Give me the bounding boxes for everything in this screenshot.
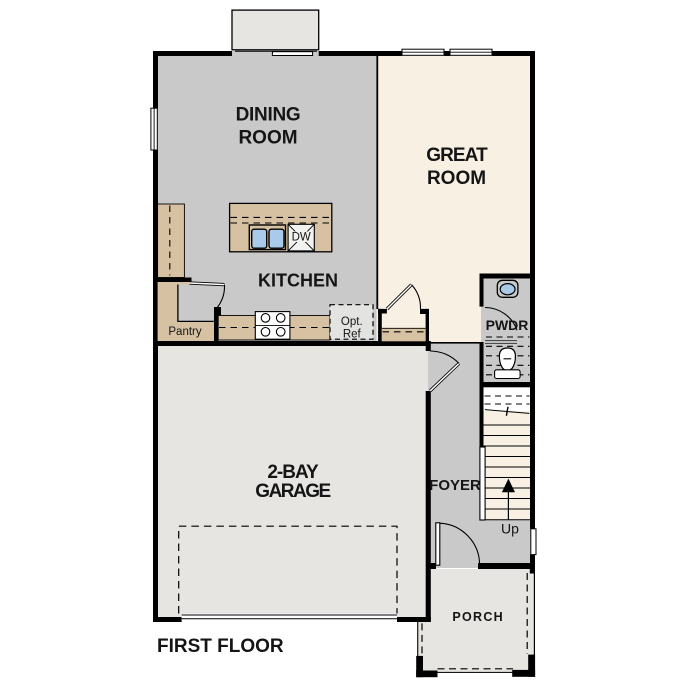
svg-text:Up: Up bbox=[501, 521, 519, 537]
svg-text:2-BAY: 2-BAY bbox=[267, 462, 319, 483]
svg-text:Opt.: Opt. bbox=[341, 316, 363, 328]
svg-text:PWDR: PWDR bbox=[486, 317, 529, 333]
svg-text:ROOM: ROOM bbox=[238, 128, 297, 149]
svg-text:FOYER: FOYER bbox=[429, 477, 481, 494]
svg-text:ROOM: ROOM bbox=[427, 168, 486, 189]
svg-text:GREAT: GREAT bbox=[426, 145, 488, 166]
svg-text:DW: DW bbox=[292, 232, 311, 244]
svg-text:FIRST FLOOR: FIRST FLOOR bbox=[157, 636, 284, 657]
svg-text:Pantry: Pantry bbox=[168, 326, 201, 338]
svg-text:PORCH: PORCH bbox=[452, 610, 504, 624]
svg-text:KITCHEN: KITCHEN bbox=[258, 271, 338, 291]
svg-text:GARAGE: GARAGE bbox=[255, 481, 330, 502]
svg-text:DINING: DINING bbox=[236, 105, 301, 126]
svg-text:Ref: Ref bbox=[343, 329, 362, 341]
